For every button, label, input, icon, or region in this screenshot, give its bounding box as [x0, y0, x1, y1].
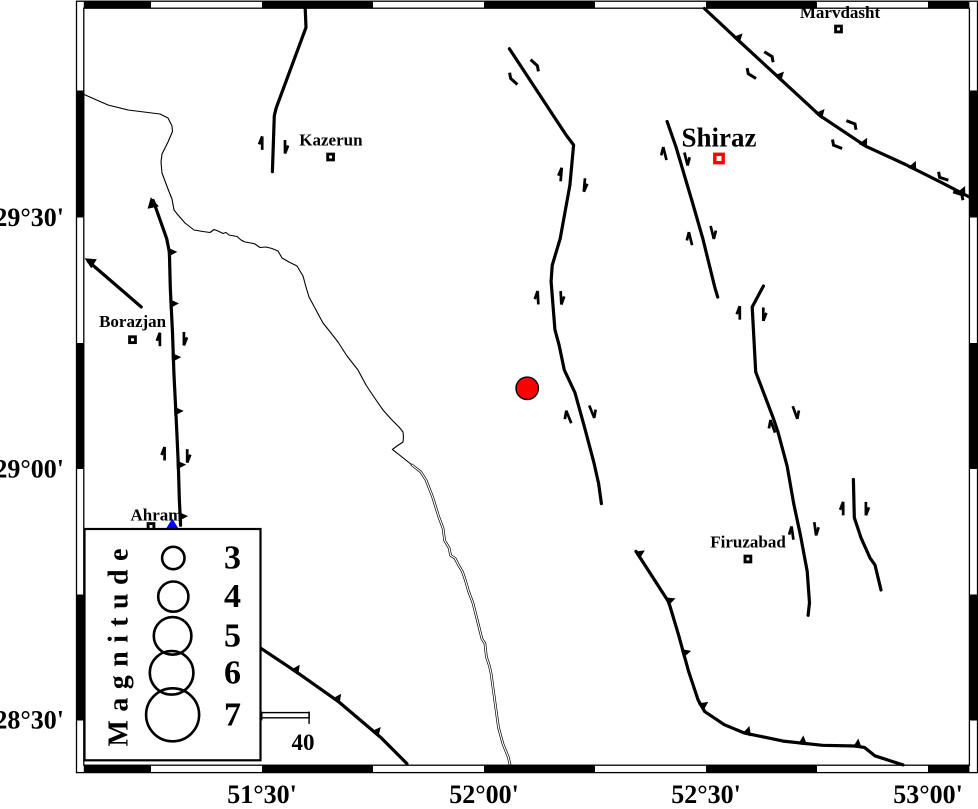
svg-text:3: 3	[224, 540, 241, 577]
svg-text:Borazjan: Borazjan	[99, 312, 167, 331]
svg-text:7: 7	[224, 696, 241, 733]
svg-text:Magnitude: Magnitude	[104, 540, 135, 746]
svg-text:28°30': 28°30'	[0, 705, 64, 734]
svg-text:Ahram: Ahram	[131, 506, 183, 525]
svg-text:29°30': 29°30'	[0, 203, 64, 232]
svg-text:29°00': 29°00'	[0, 454, 64, 483]
svg-text:52°30': 52°30'	[671, 780, 741, 804]
svg-text:6: 6	[224, 654, 241, 691]
svg-text:Marvdasht: Marvdasht	[800, 3, 881, 22]
svg-text:53°00': 53°00'	[893, 780, 963, 804]
svg-text:Shiraz: Shiraz	[681, 122, 756, 152]
svg-text:5: 5	[224, 618, 241, 655]
svg-text:4: 4	[224, 578, 241, 615]
svg-text:51°30': 51°30'	[227, 780, 297, 804]
svg-text:52°00': 52°00'	[449, 780, 519, 804]
svg-text:Kazerun: Kazerun	[299, 131, 363, 150]
svg-text:40: 40	[292, 730, 315, 755]
svg-text:Firuzabad: Firuzabad	[710, 533, 786, 552]
